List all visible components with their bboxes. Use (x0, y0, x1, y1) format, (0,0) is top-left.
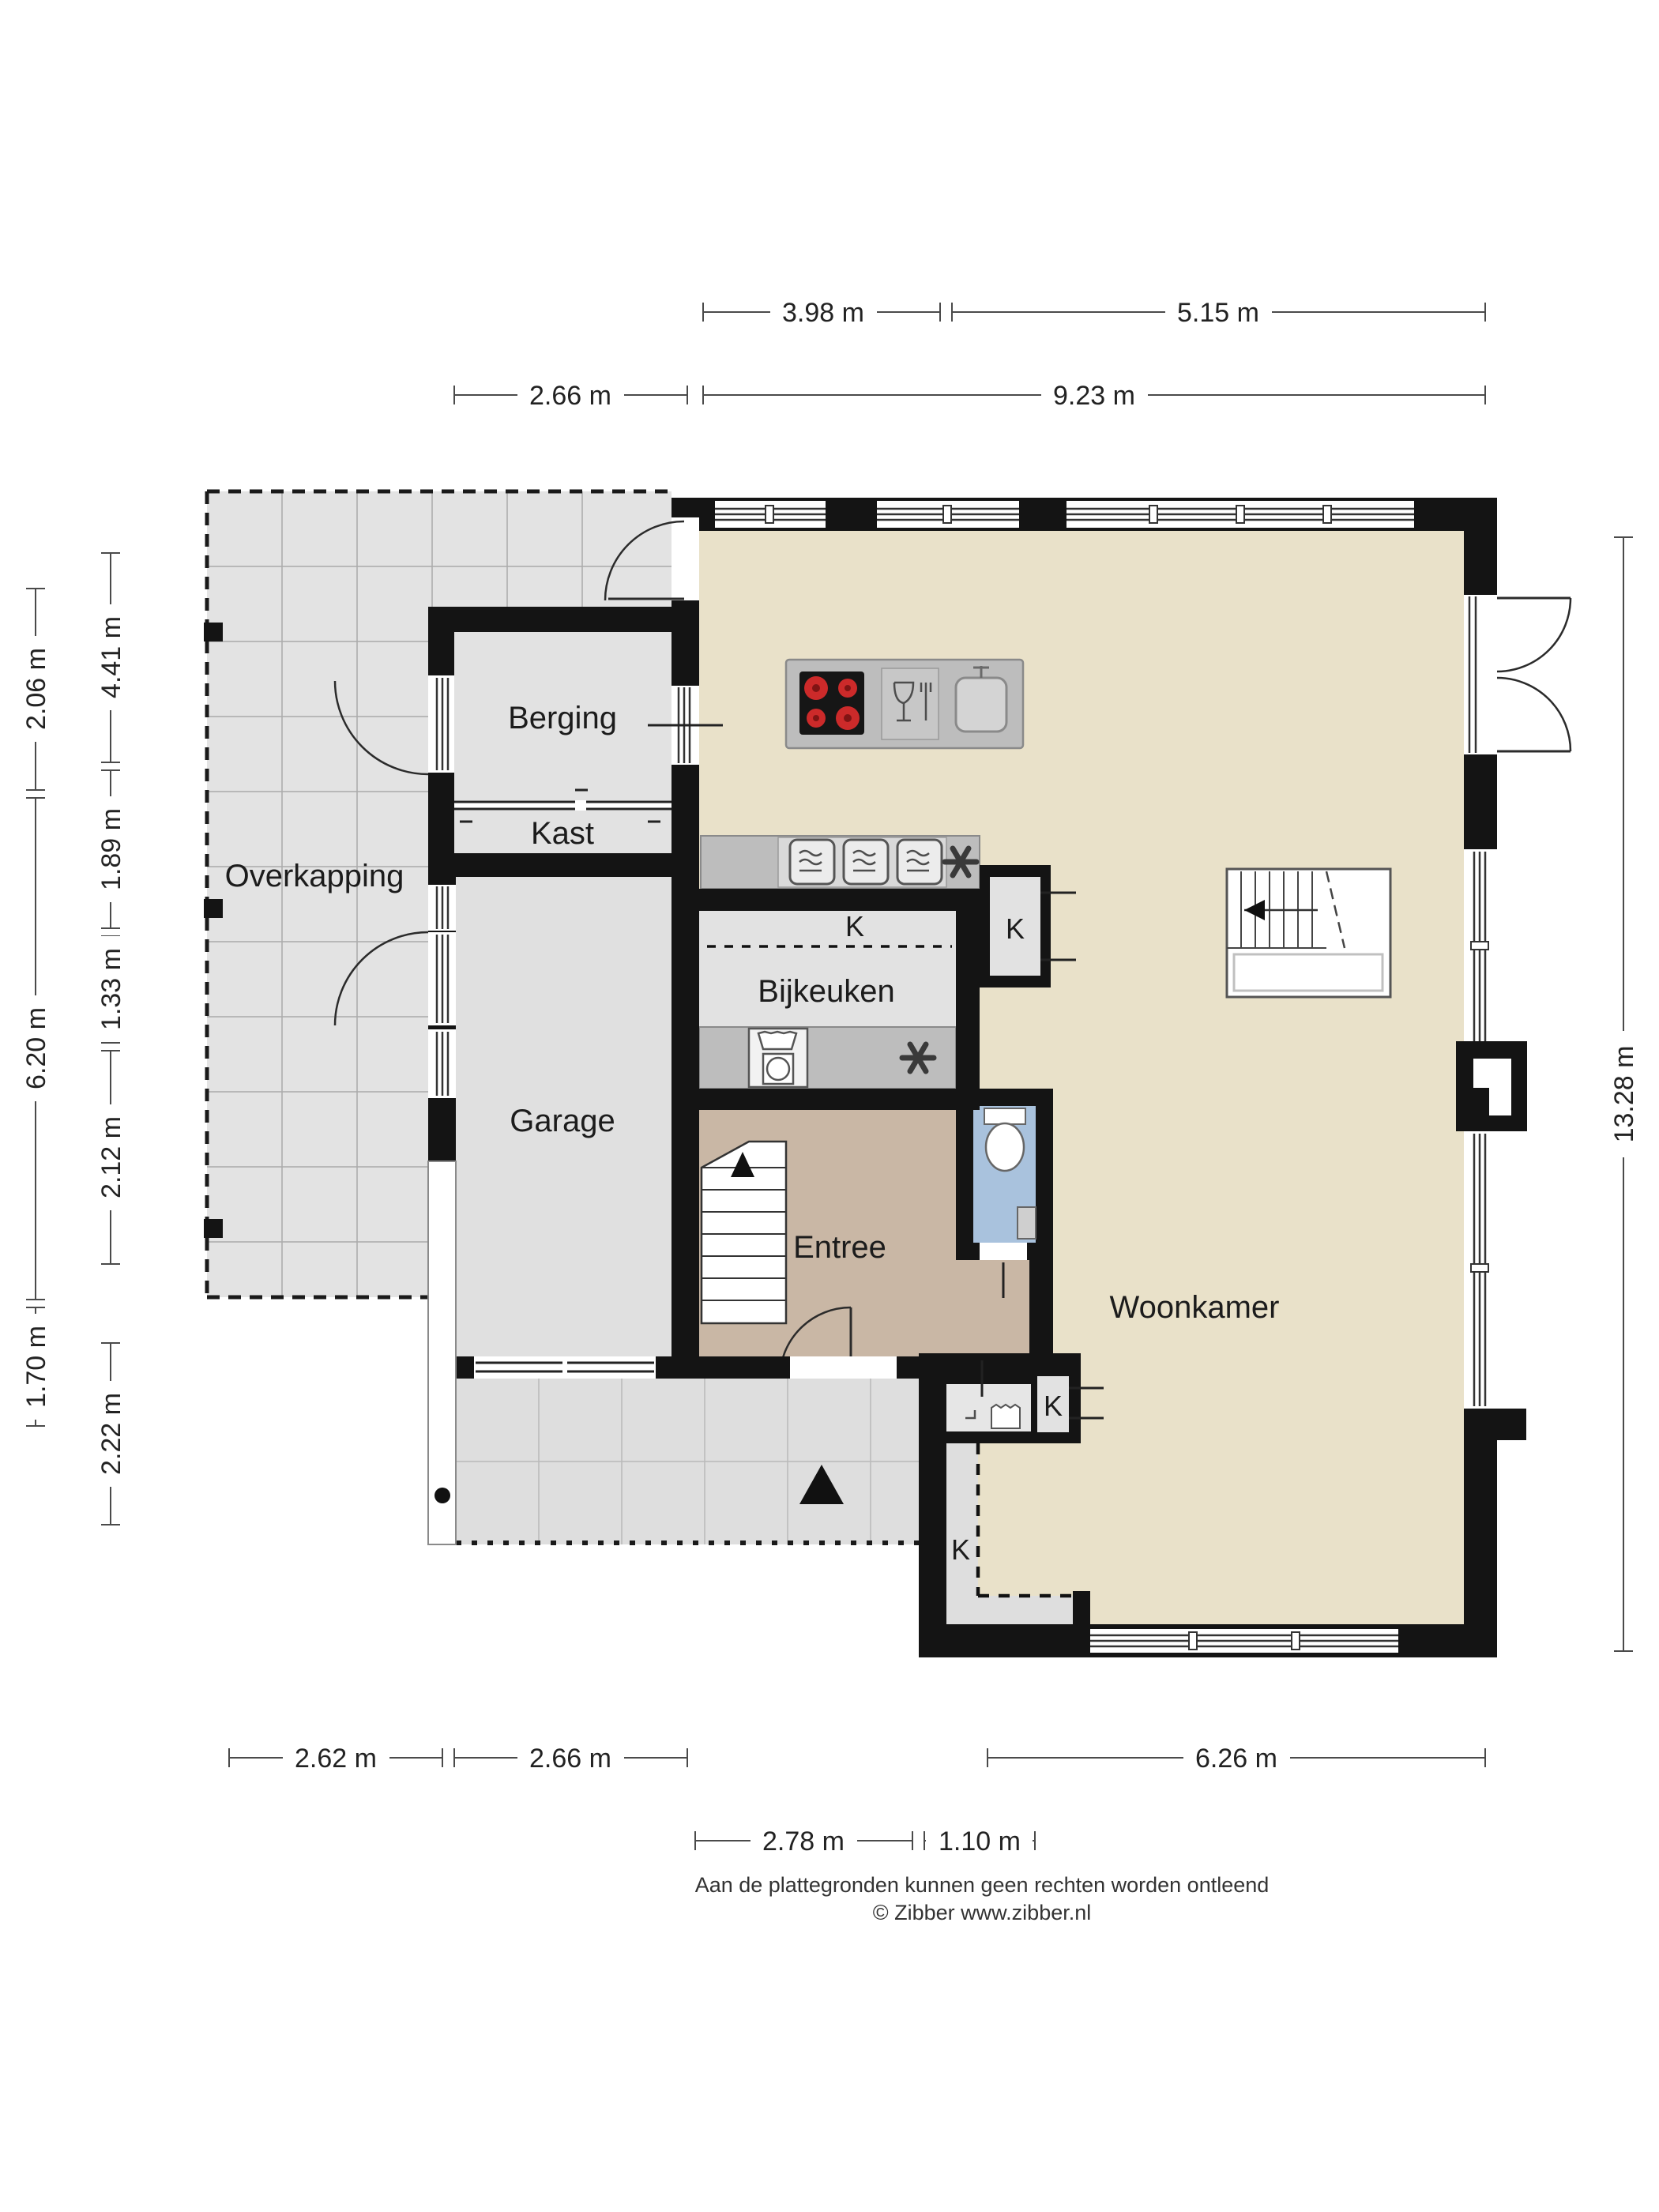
dim-bottom-266: 2.66 m (454, 1741, 687, 1774)
dim-left-206: 2.06 m (19, 589, 52, 790)
cooktop-icon (799, 671, 864, 735)
stairs-up-icon (702, 1142, 786, 1323)
svg-text:2.06 m: 2.06 m (21, 648, 51, 730)
bijkeuken: K Bijkeuken (698, 910, 956, 1089)
svg-text:2.12 m: 2.12 m (96, 1116, 126, 1198)
sliding-door (454, 802, 671, 809)
svg-text:1.10 m: 1.10 m (939, 1826, 1021, 1856)
porch-post-icon (434, 1488, 450, 1503)
svg-text:6.26 m: 6.26 m (1195, 1744, 1277, 1774)
dim-left-189: 1.89 m (94, 770, 127, 928)
overkapping-label: Overkapping (225, 859, 404, 893)
dim-top-266: 2.66 m (454, 378, 687, 412)
hand-basin-icon (1018, 1207, 1036, 1239)
laundry-basket-icon (758, 1032, 796, 1049)
hall-k-label: K (1044, 1390, 1063, 1422)
toilet-icon (984, 1108, 1025, 1171)
woonkamer-label: Woonkamer (1110, 1290, 1280, 1325)
berging-label: Berging (508, 701, 617, 735)
floorplan-canvas: Overkapping K (0, 0, 1659, 2212)
svg-text:2.66 m: 2.66 m (529, 381, 611, 411)
washing-machine-icon (749, 1029, 807, 1087)
kast-label: Kast (531, 816, 594, 851)
dim-left-222: 2.22 m (94, 1343, 127, 1525)
entree-label: Entree (793, 1230, 886, 1265)
kitchen-k-label: K (1006, 912, 1025, 945)
dim-top-515: 5.15 m (952, 295, 1485, 329)
dim-bottom-626: 6.26 m (987, 1741, 1485, 1774)
svg-text:1.33 m: 1.33 m (96, 948, 126, 1030)
svg-text:6.20 m: 6.20 m (21, 1007, 51, 1089)
footer: Aan de plattegronden kunnen geen rechten… (695, 1873, 1270, 1924)
dim-left-170: 1.70 m (19, 1307, 52, 1426)
kitchen-counter (701, 836, 980, 889)
dim-right-1328: 13.28 m (1607, 537, 1640, 1651)
svg-text:4.41 m: 4.41 m (96, 616, 126, 698)
svg-text:1.89 m: 1.89 m (96, 808, 126, 890)
dim-left-212: 2.12 m (94, 1051, 127, 1264)
stairs-woonkamer (1227, 869, 1390, 997)
svg-text:3.98 m: 3.98 m (782, 298, 864, 328)
dim-bottom-110: 1.10 m (924, 1824, 1035, 1857)
svg-text:1.70 m: 1.70 m (21, 1326, 51, 1408)
bijkeuken-k-label: K (845, 910, 864, 942)
oven-icon (790, 840, 834, 884)
dim-bottom-262: 2.62 m (229, 1741, 442, 1774)
garage-label: Garage (510, 1104, 615, 1138)
bijkeuken-floor (698, 911, 956, 1027)
dim-left-133: 1.33 m (94, 936, 127, 1043)
kitchen-island (786, 660, 1023, 748)
svg-text:5.15 m: 5.15 m (1177, 298, 1259, 328)
dim-left-441: 4.41 m (94, 553, 127, 762)
porch-post-wall (428, 1161, 456, 1544)
footer-disclaimer: Aan de plattegronden kunnen geen rechten… (695, 1873, 1270, 1897)
soap-tray-icon (991, 1405, 1020, 1428)
oven-icon (844, 840, 888, 884)
dim-bottom-278: 2.78 m (695, 1824, 912, 1857)
svg-text:13.28 m: 13.28 m (1609, 1046, 1639, 1143)
french-doors (1497, 598, 1571, 751)
pantry-k-label: K (951, 1533, 970, 1566)
bijkeuken-label: Bijkeuken (758, 974, 894, 1009)
svg-text:2.66 m: 2.66 m (529, 1744, 611, 1774)
svg-text:2.62 m: 2.62 m (295, 1744, 377, 1774)
footer-credit: © Zibber www.zibber.nl (873, 1901, 1092, 1924)
chimney (1456, 1041, 1527, 1131)
oven-icon (897, 840, 942, 884)
svg-text:2.78 m: 2.78 m (762, 1826, 845, 1856)
hall-closets: K (919, 1353, 1104, 1443)
dim-left-620: 6.20 m (19, 798, 52, 1300)
dim-top-398: 3.98 m (703, 295, 940, 329)
svg-text:9.23 m: 9.23 m (1053, 381, 1135, 411)
svg-text:2.22 m: 2.22 m (96, 1393, 126, 1475)
dishwasher-icon (882, 668, 939, 739)
dim-top-923: 9.23 m (703, 378, 1485, 412)
floorplan-page: Overkapping K (0, 0, 1659, 2212)
